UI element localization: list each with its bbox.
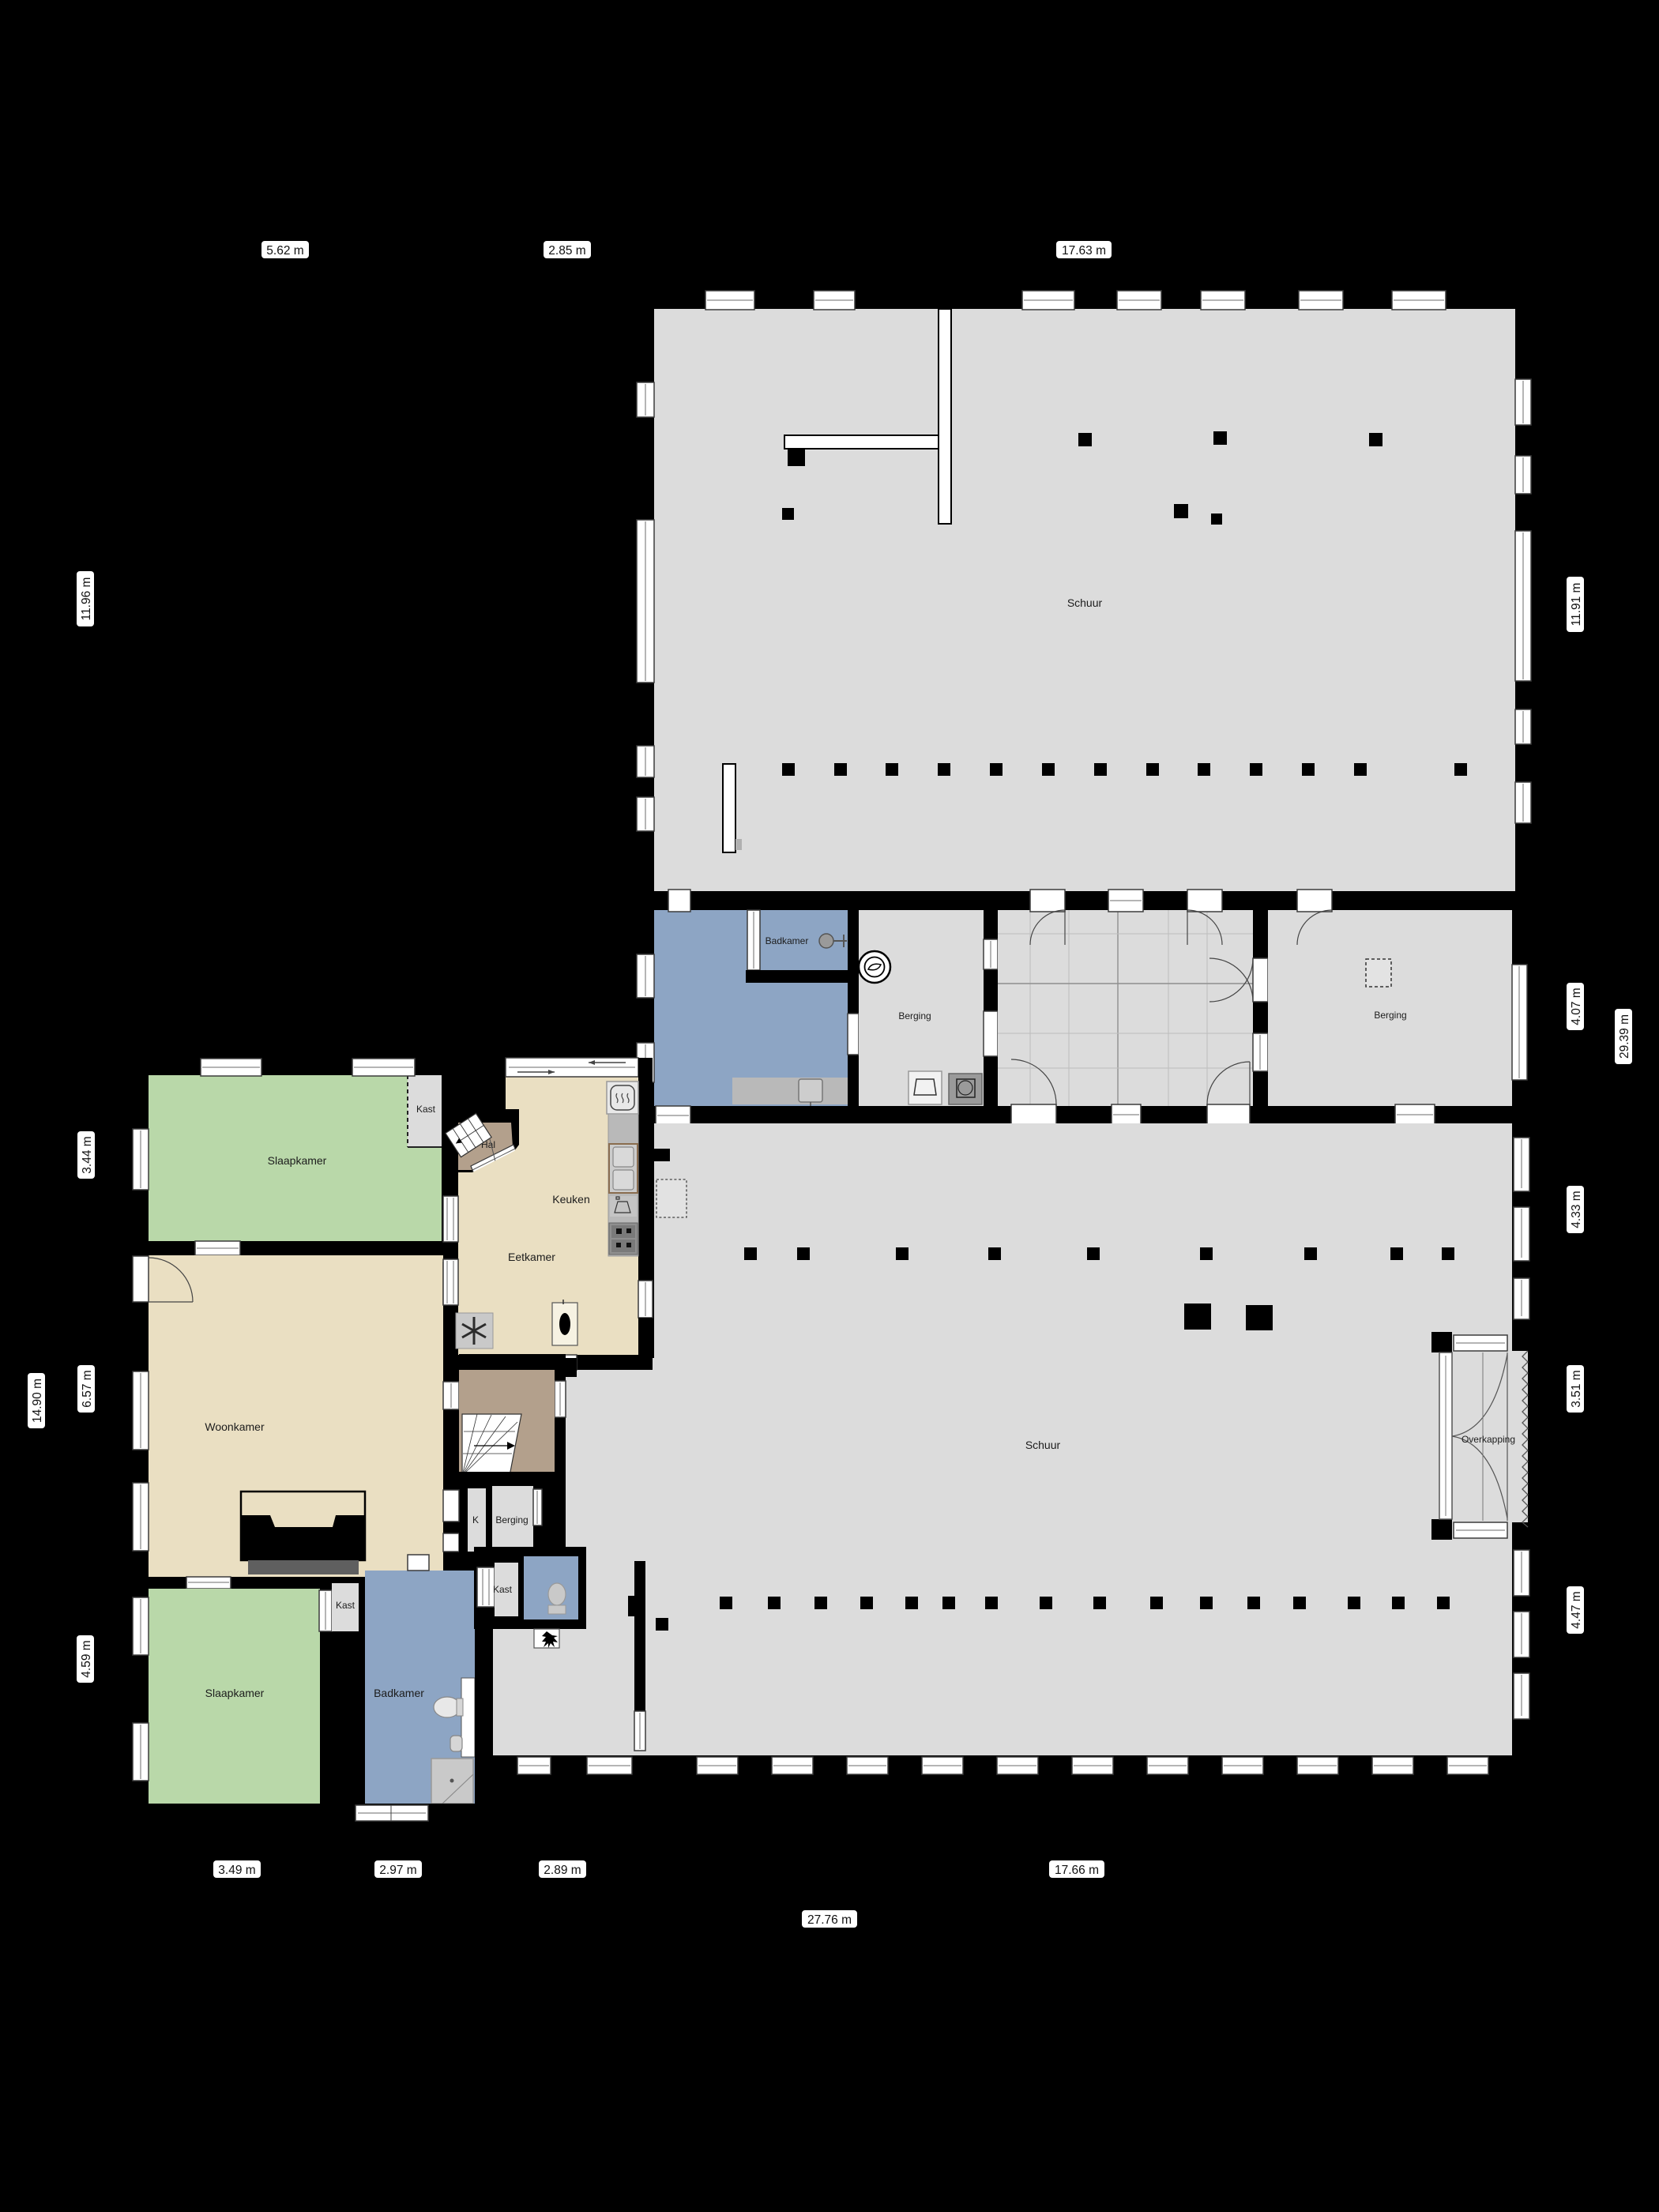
svg-text:Keuken: Keuken [552,1193,589,1206]
svg-text:K: K [472,1514,479,1525]
svg-text:4.07 m: 4.07 m [1570,987,1583,1025]
svg-text:4.59 m: 4.59 m [80,1640,93,1677]
svg-text:5.62 m: 5.62 m [266,244,303,258]
svg-text:17.66 m: 17.66 m [1055,1864,1099,1877]
svg-text:3.44 m: 3.44 m [81,1136,94,1173]
svg-text:11.91 m: 11.91 m [1570,583,1583,626]
svg-text:29.39 m: 29.39 m [1618,1014,1631,1059]
svg-text:Badkamer: Badkamer [374,1687,424,1699]
svg-text:Berging: Berging [495,1514,528,1525]
svg-text:2.85 m: 2.85 m [548,244,585,258]
svg-text:Schuur: Schuur [1067,596,1103,609]
svg-text:Slaapkamer: Slaapkamer [205,1687,265,1699]
svg-text:Berging: Berging [1374,1010,1406,1021]
svg-text:Eetkamer: Eetkamer [508,1251,555,1263]
svg-text:2.89 m: 2.89 m [544,1864,581,1877]
svg-text:Schuur: Schuur [1025,1439,1061,1451]
svg-text:2.97 m: 2.97 m [379,1864,416,1877]
svg-text:11.96 m: 11.96 m [80,577,93,621]
svg-text:Berging: Berging [898,1010,931,1021]
svg-text:4.33 m: 4.33 m [1570,1191,1583,1228]
svg-text:Kast: Kast [416,1104,436,1115]
svg-text:17.63 m: 17.63 m [1062,244,1106,258]
svg-text:Kast: Kast [493,1584,513,1595]
svg-text:Badkamer: Badkamer [766,935,809,946]
svg-text:Overkapping: Overkapping [1461,1434,1515,1445]
svg-text:14.90 m: 14.90 m [31,1379,44,1423]
svg-text:Woonkamer: Woonkamer [205,1420,265,1433]
svg-text:4.47 m: 4.47 m [1570,1591,1583,1628]
svg-text:27.76 m: 27.76 m [807,1913,852,1927]
svg-text:Slaapkamer: Slaapkamer [268,1154,327,1167]
svg-text:3.49 m: 3.49 m [218,1864,255,1877]
svg-text:3.51 m: 3.51 m [1570,1370,1583,1407]
svg-text:6.57 m: 6.57 m [81,1370,94,1407]
svg-text:Kast: Kast [336,1600,355,1611]
